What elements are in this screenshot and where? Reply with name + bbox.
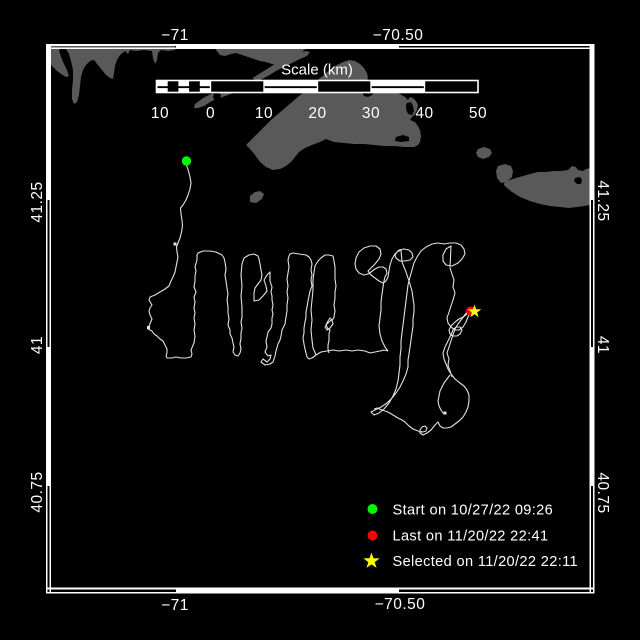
svg-text:Selected on 11/20/22 22:11: Selected on 11/20/22 22:11 [393, 554, 578, 570]
svg-text:10: 10 [151, 105, 169, 122]
svg-text:−70.50: −70.50 [375, 596, 426, 613]
svg-text:40.75: 40.75 [29, 471, 46, 512]
svg-text:−71: −71 [161, 27, 189, 44]
svg-text:−71: −71 [161, 597, 189, 614]
svg-text:41.25: 41.25 [29, 181, 46, 222]
svg-text:Scale (km): Scale (km) [281, 62, 353, 79]
svg-text:41: 41 [594, 336, 611, 354]
svg-text:10: 10 [255, 105, 273, 122]
svg-text:40: 40 [415, 105, 433, 122]
svg-text:41.25: 41.25 [594, 180, 611, 221]
svg-text:40.75: 40.75 [594, 472, 611, 513]
svg-text:30: 30 [362, 105, 380, 122]
svg-text:−70.50: −70.50 [373, 27, 424, 44]
svg-text:41: 41 [29, 336, 46, 354]
svg-text:20: 20 [308, 105, 326, 122]
svg-text:50: 50 [469, 105, 487, 122]
svg-text:0: 0 [206, 105, 215, 122]
svg-text:Start on 10/27/22 09:26: Start on 10/27/22 09:26 [393, 503, 554, 519]
svg-text:Last on 11/20/22 22:41: Last on 11/20/22 22:41 [393, 529, 549, 545]
